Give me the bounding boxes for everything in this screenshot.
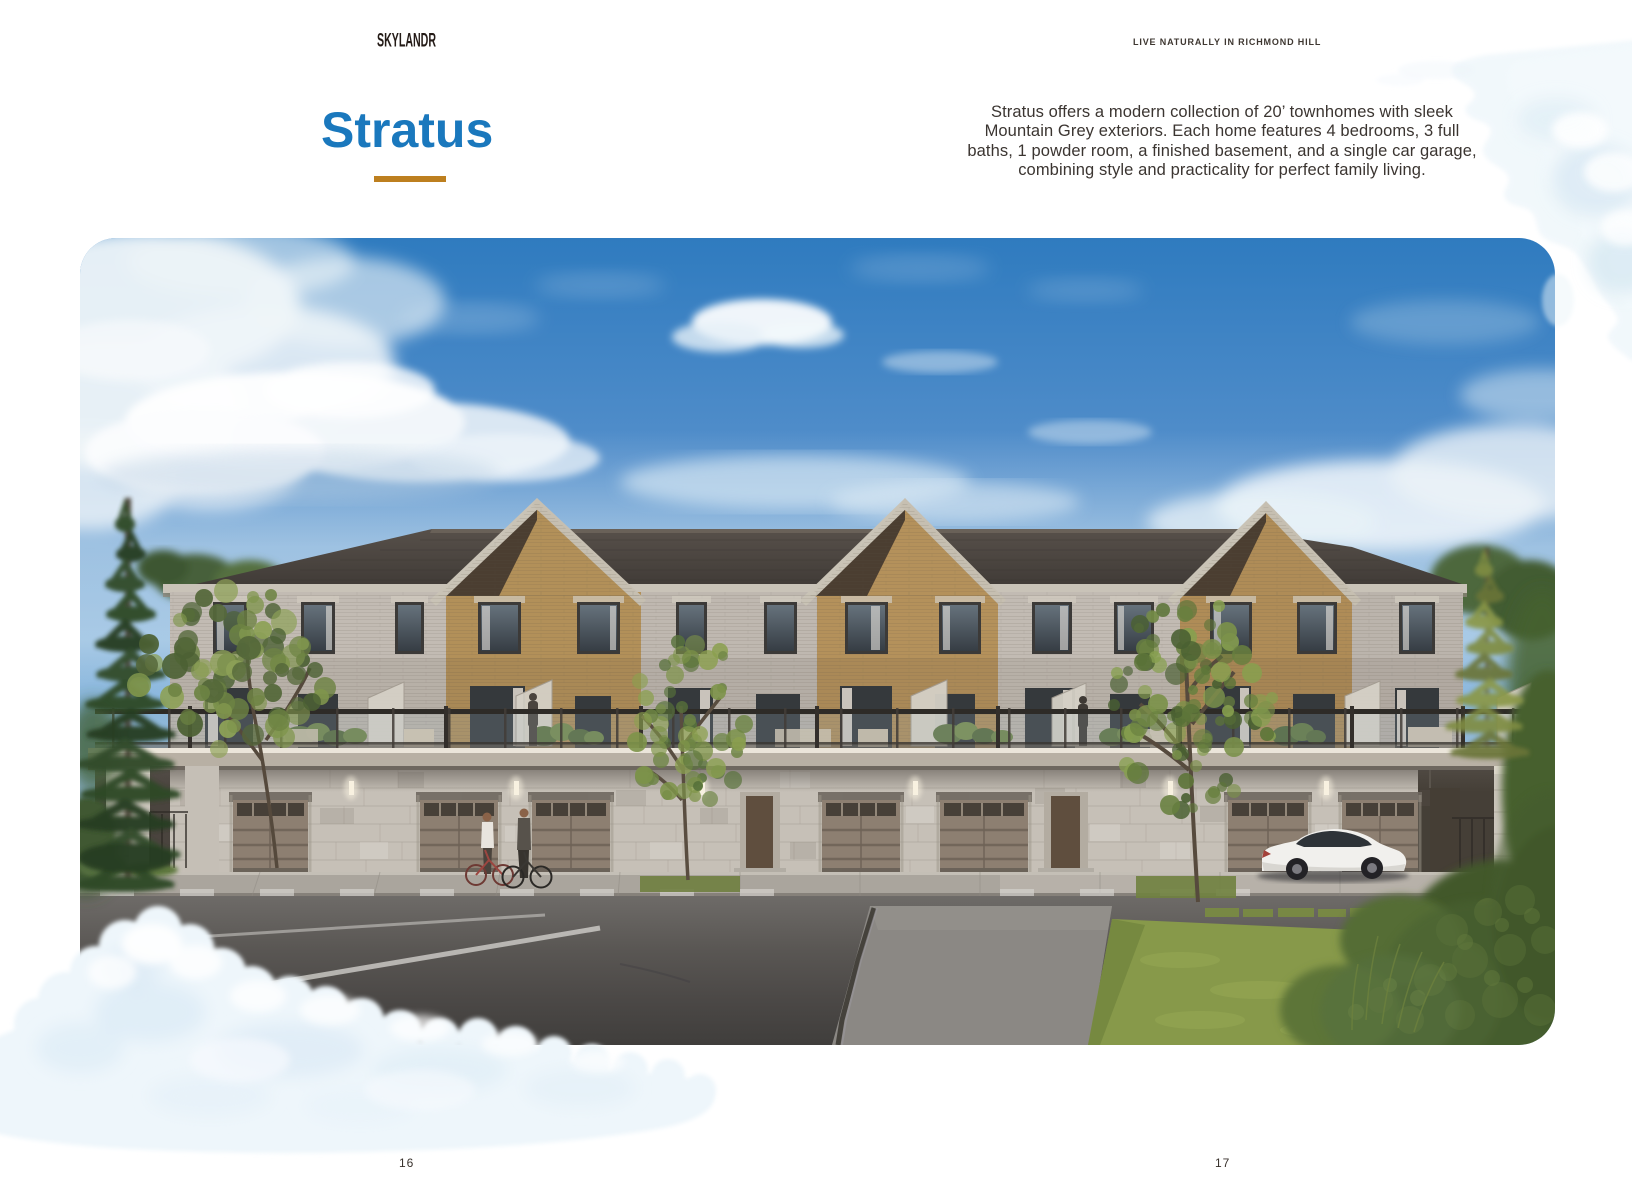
svg-text:SKYLANDR: SKYLANDR	[377, 30, 436, 50]
